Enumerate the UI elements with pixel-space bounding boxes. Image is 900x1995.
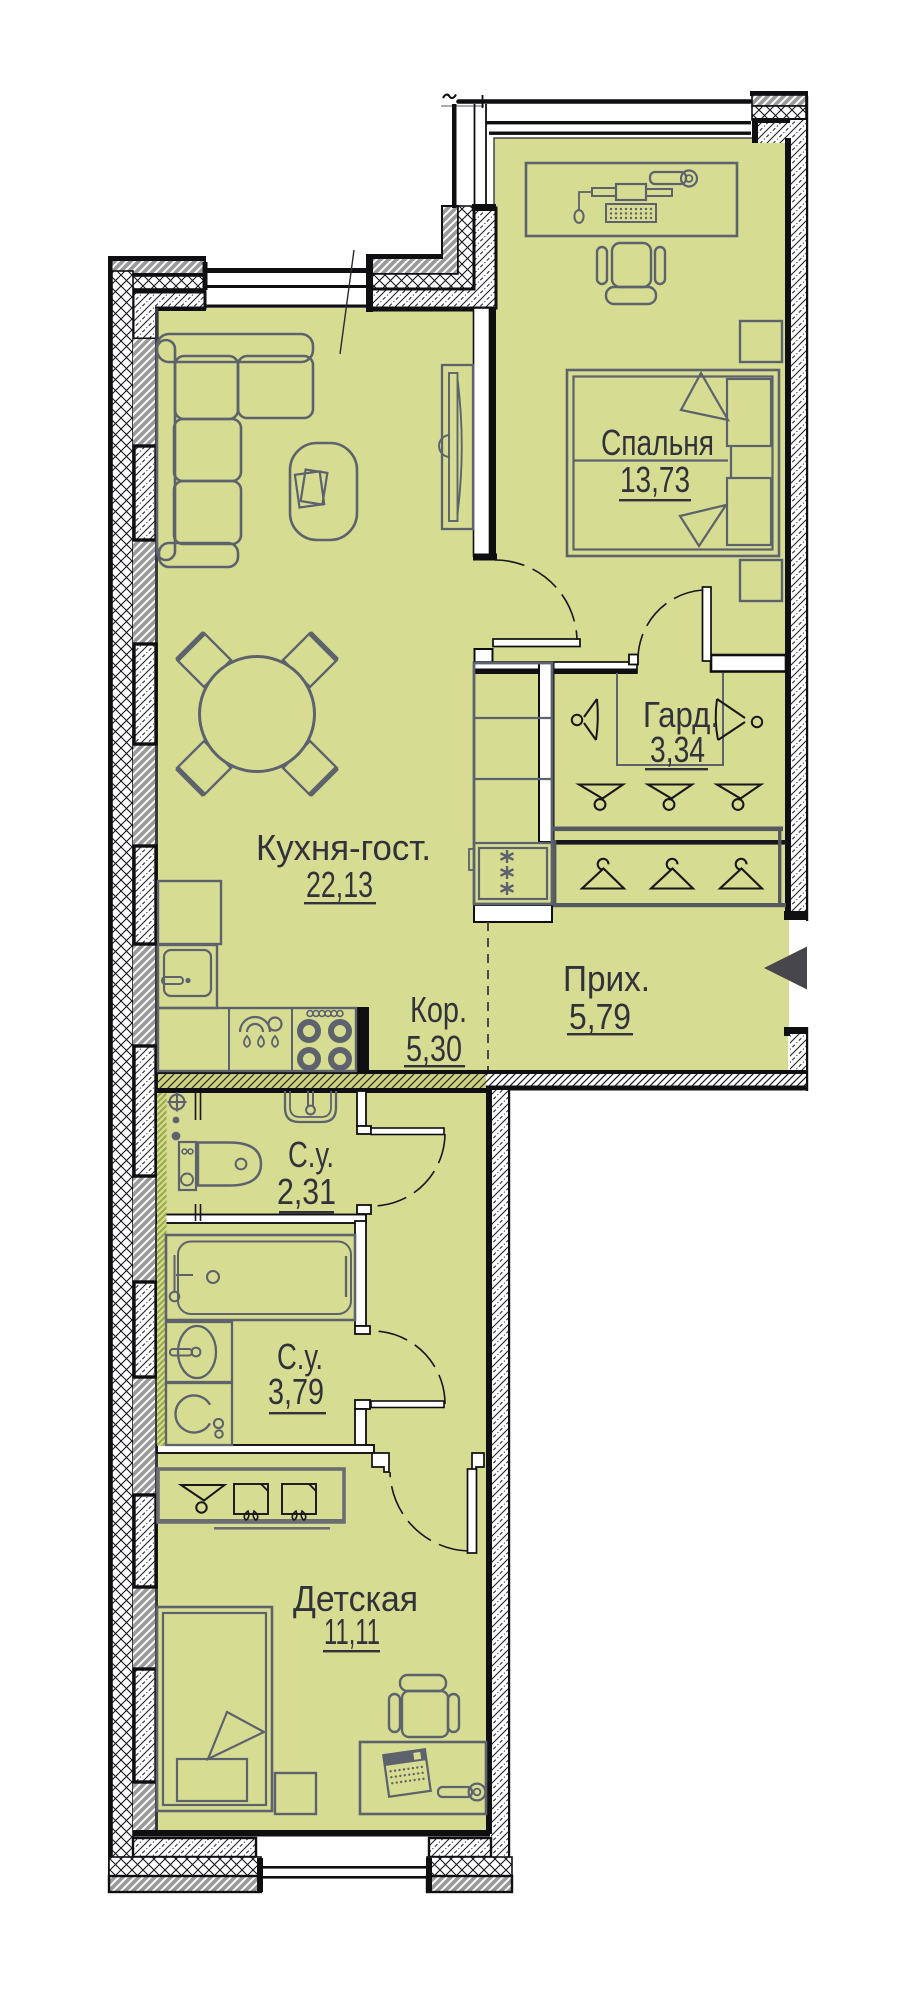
svg-text:5,30: 5,30 bbox=[406, 1028, 462, 1069]
svg-text:Кухня-гост.: Кухня-гост. bbox=[256, 827, 431, 868]
svg-text:5,79: 5,79 bbox=[569, 996, 631, 1037]
svg-text:С.у.: С.у. bbox=[288, 1134, 334, 1175]
svg-text:22,13: 22,13 bbox=[306, 864, 373, 905]
svg-text:11,11: 11,11 bbox=[324, 1611, 380, 1652]
svg-text:Кор.: Кор. bbox=[410, 989, 467, 1030]
svg-text:Спальня: Спальня bbox=[601, 422, 714, 463]
svg-text:13,73: 13,73 bbox=[620, 459, 690, 500]
svg-text:2,31: 2,31 bbox=[277, 1171, 336, 1212]
svg-text:Прих.: Прих. bbox=[563, 958, 650, 999]
svg-text:3,79: 3,79 bbox=[268, 1371, 324, 1412]
svg-text:3,34: 3,34 bbox=[650, 729, 705, 770]
